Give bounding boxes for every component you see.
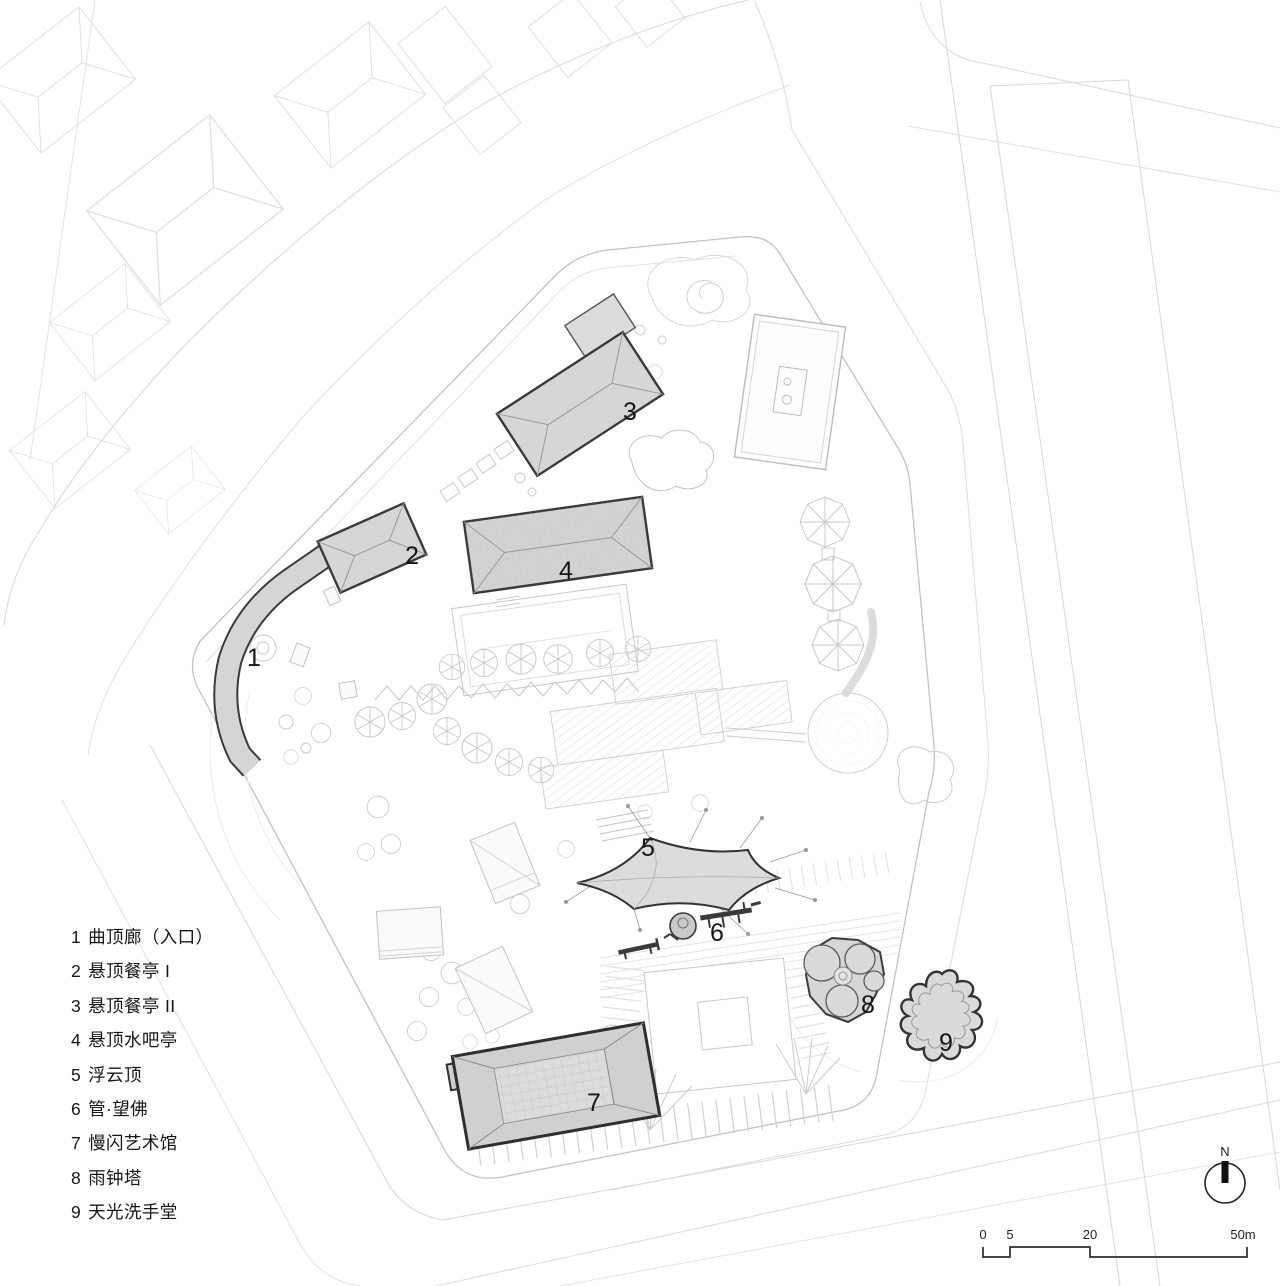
bottom-plaza: [644, 958, 796, 1094]
legend-item-number: 7: [71, 1126, 81, 1160]
legend-item-5: 5浮云顶: [71, 1058, 213, 1092]
pool: [452, 584, 639, 696]
plan-label-7: 7: [587, 1089, 601, 1117]
north-needle: [1222, 1161, 1229, 1183]
pond: [629, 430, 713, 491]
legend-item-7: 7慢闪艺术馆: [71, 1126, 213, 1160]
legend-item-9: 9天光洗手堂: [71, 1195, 213, 1229]
circular-plaza: [808, 612, 888, 773]
legend-item-6: 6管·望佛: [71, 1092, 213, 1126]
plan-label-9: 9: [939, 1029, 953, 1057]
legend-item-number: 3: [71, 989, 81, 1023]
plan-label-4: 4: [559, 557, 573, 585]
legend-item-label: 天光洗手堂: [88, 1202, 178, 1222]
legend-item-label: 管·望佛: [88, 1099, 148, 1119]
structure-7-art-gallery: [445, 1023, 659, 1150]
plan-label-8: 8: [861, 991, 875, 1019]
rock-garden: [635, 255, 750, 344]
structure-1-curved-gallery: [226, 540, 348, 768]
legend-item-number: 2: [71, 954, 81, 988]
legend-item-label: 浮云顶: [88, 1065, 142, 1085]
pond-east: [898, 747, 954, 804]
legend-item-number: 5: [71, 1058, 81, 1092]
plan-label-2: 2: [405, 542, 419, 570]
legend-item-number: 4: [71, 1023, 81, 1057]
context-buildings: [0, 0, 685, 534]
plan-label-6: 6: [710, 919, 724, 947]
north-label: N: [1220, 1144, 1229, 1159]
north-indicator: N: [1205, 1144, 1245, 1203]
legend-item-label: 慢闪艺术馆: [88, 1133, 178, 1153]
context-large-building: [734, 314, 845, 469]
scale-tick-0: 0: [979, 1227, 986, 1242]
legend: 1曲顶廊（入口） 2悬顶餐亭 I 3悬顶餐亭 II 4悬顶水吧亭 5浮云顶 6管…: [71, 920, 213, 1230]
site-plan-page: 1 2 3 4 5 6 7 8 9 N 0 5 20 50m 1曲顶廊（入口） …: [0, 0, 1280, 1286]
legend-item-label: 悬顶餐亭 II: [88, 996, 175, 1016]
scale-tick-5: 5: [1006, 1227, 1013, 1242]
legend-item-number: 1: [71, 920, 81, 954]
legend-item-4: 4悬顶水吧亭: [71, 1023, 213, 1057]
legend-item-8: 8雨钟塔: [71, 1161, 213, 1195]
structure-4-water-bar-pavilion: [464, 497, 652, 593]
legend-item-1: 1曲顶廊（入口）: [71, 920, 213, 954]
plan-label-5: 5: [641, 834, 655, 862]
legend-item-2: 2悬顶餐亭 I: [71, 954, 213, 988]
legend-item-label: 曲顶廊（入口）: [88, 927, 213, 947]
plan-label-1: 1: [247, 644, 261, 672]
scale-tick-20: 20: [1083, 1227, 1097, 1242]
plan-label-3: 3: [623, 398, 637, 426]
legend-item-3: 3悬顶餐亭 II: [71, 989, 213, 1023]
legend-item-number: 6: [71, 1092, 81, 1126]
legend-item-label: 悬顶餐亭 I: [88, 961, 170, 981]
umbrella-pavilions: [800, 497, 864, 671]
scale-bar: 0 5 20 50m: [979, 1227, 1255, 1257]
pipe-flute-left: [617, 938, 659, 960]
sphere-sculpture: [670, 913, 696, 939]
legend-item-label: 雨钟塔: [88, 1168, 142, 1188]
legend-item-number: 8: [71, 1161, 81, 1195]
legend-item-number: 9: [71, 1195, 81, 1229]
scale-tick-50m: 50m: [1230, 1227, 1255, 1242]
legend-item-label: 悬顶水吧亭: [88, 1030, 178, 1050]
